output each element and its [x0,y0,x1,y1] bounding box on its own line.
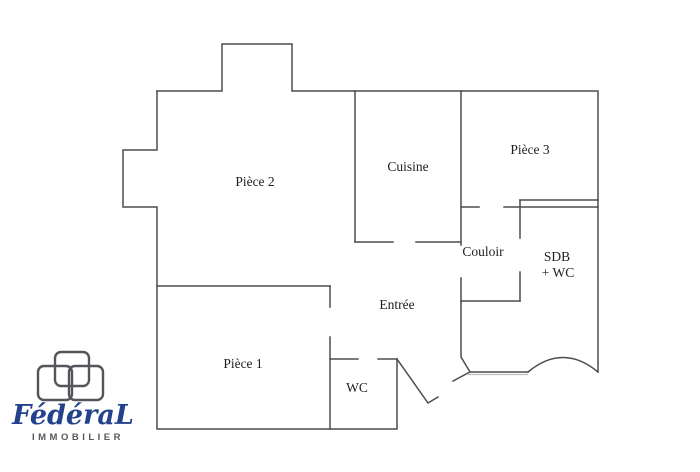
label-entree: Entrée [379,297,414,312]
floor-plan-page: Pièce 2 Cuisine Pièce 3 Couloir SDB + WC… [0,0,700,472]
walls [123,44,598,429]
logo-square-right [69,366,103,400]
logo-squares-icon [38,352,103,400]
label-wc: WC [346,380,368,395]
label-sdb-line2: + WC [542,265,575,280]
logo-subtitle-text: IMMOBILIER [32,432,124,443]
floor-plan-drawing: Pièce 2 Cuisine Pièce 3 Couloir SDB + WC… [0,0,700,472]
logo-brand-text: FédéraL [11,400,134,431]
entrance-door-leaf [397,359,438,403]
label-sdb-line1: SDB [544,249,570,264]
exterior-wall-left-bottom [123,91,397,429]
entrance-door-arc [528,358,598,373]
label-piece2: Pièce 2 [235,174,274,189]
label-cuisine: Cuisine [387,159,428,174]
room-labels: Pièce 2 Cuisine Pièce 3 Couloir SDB + WC… [223,142,574,395]
door-tick [453,372,470,381]
label-piece1: Pièce 1 [223,356,262,371]
exterior-wall-top-right [157,44,598,372]
label-couloir: Couloir [462,244,504,259]
exterior-wall-bottom-right [461,302,528,372]
label-piece3: Pièce 3 [510,142,550,157]
agency-logo: FédéraL IMMOBILIER [11,352,134,443]
